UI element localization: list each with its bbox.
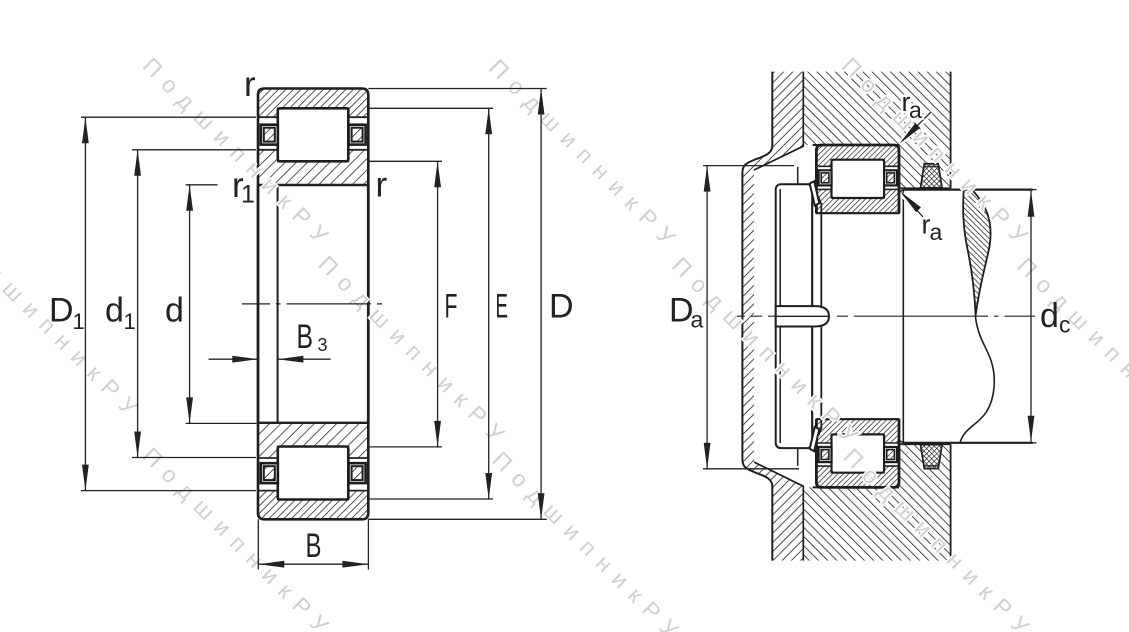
svg-text:r: r bbox=[232, 166, 244, 205]
svg-text:r: r bbox=[376, 166, 388, 205]
svg-text:a: a bbox=[930, 219, 943, 245]
svg-text:d: d bbox=[1040, 297, 1059, 335]
svg-text:1: 1 bbox=[124, 309, 136, 334]
svg-text:1: 1 bbox=[73, 309, 85, 334]
svg-text:a: a bbox=[691, 307, 704, 333]
svg-text:D: D bbox=[49, 292, 74, 330]
svg-text:F: F bbox=[445, 288, 458, 326]
svg-text:c: c bbox=[1059, 312, 1071, 338]
svg-text:B: B bbox=[297, 318, 314, 356]
svg-text:a: a bbox=[909, 97, 922, 123]
svg-text:r: r bbox=[244, 65, 256, 104]
svg-text:E: E bbox=[496, 288, 509, 326]
svg-text:d: d bbox=[165, 292, 184, 330]
svg-text:3: 3 bbox=[318, 335, 328, 355]
svg-text:d: d bbox=[105, 292, 124, 330]
svg-text:D: D bbox=[549, 288, 574, 326]
svg-text:B: B bbox=[306, 527, 322, 565]
